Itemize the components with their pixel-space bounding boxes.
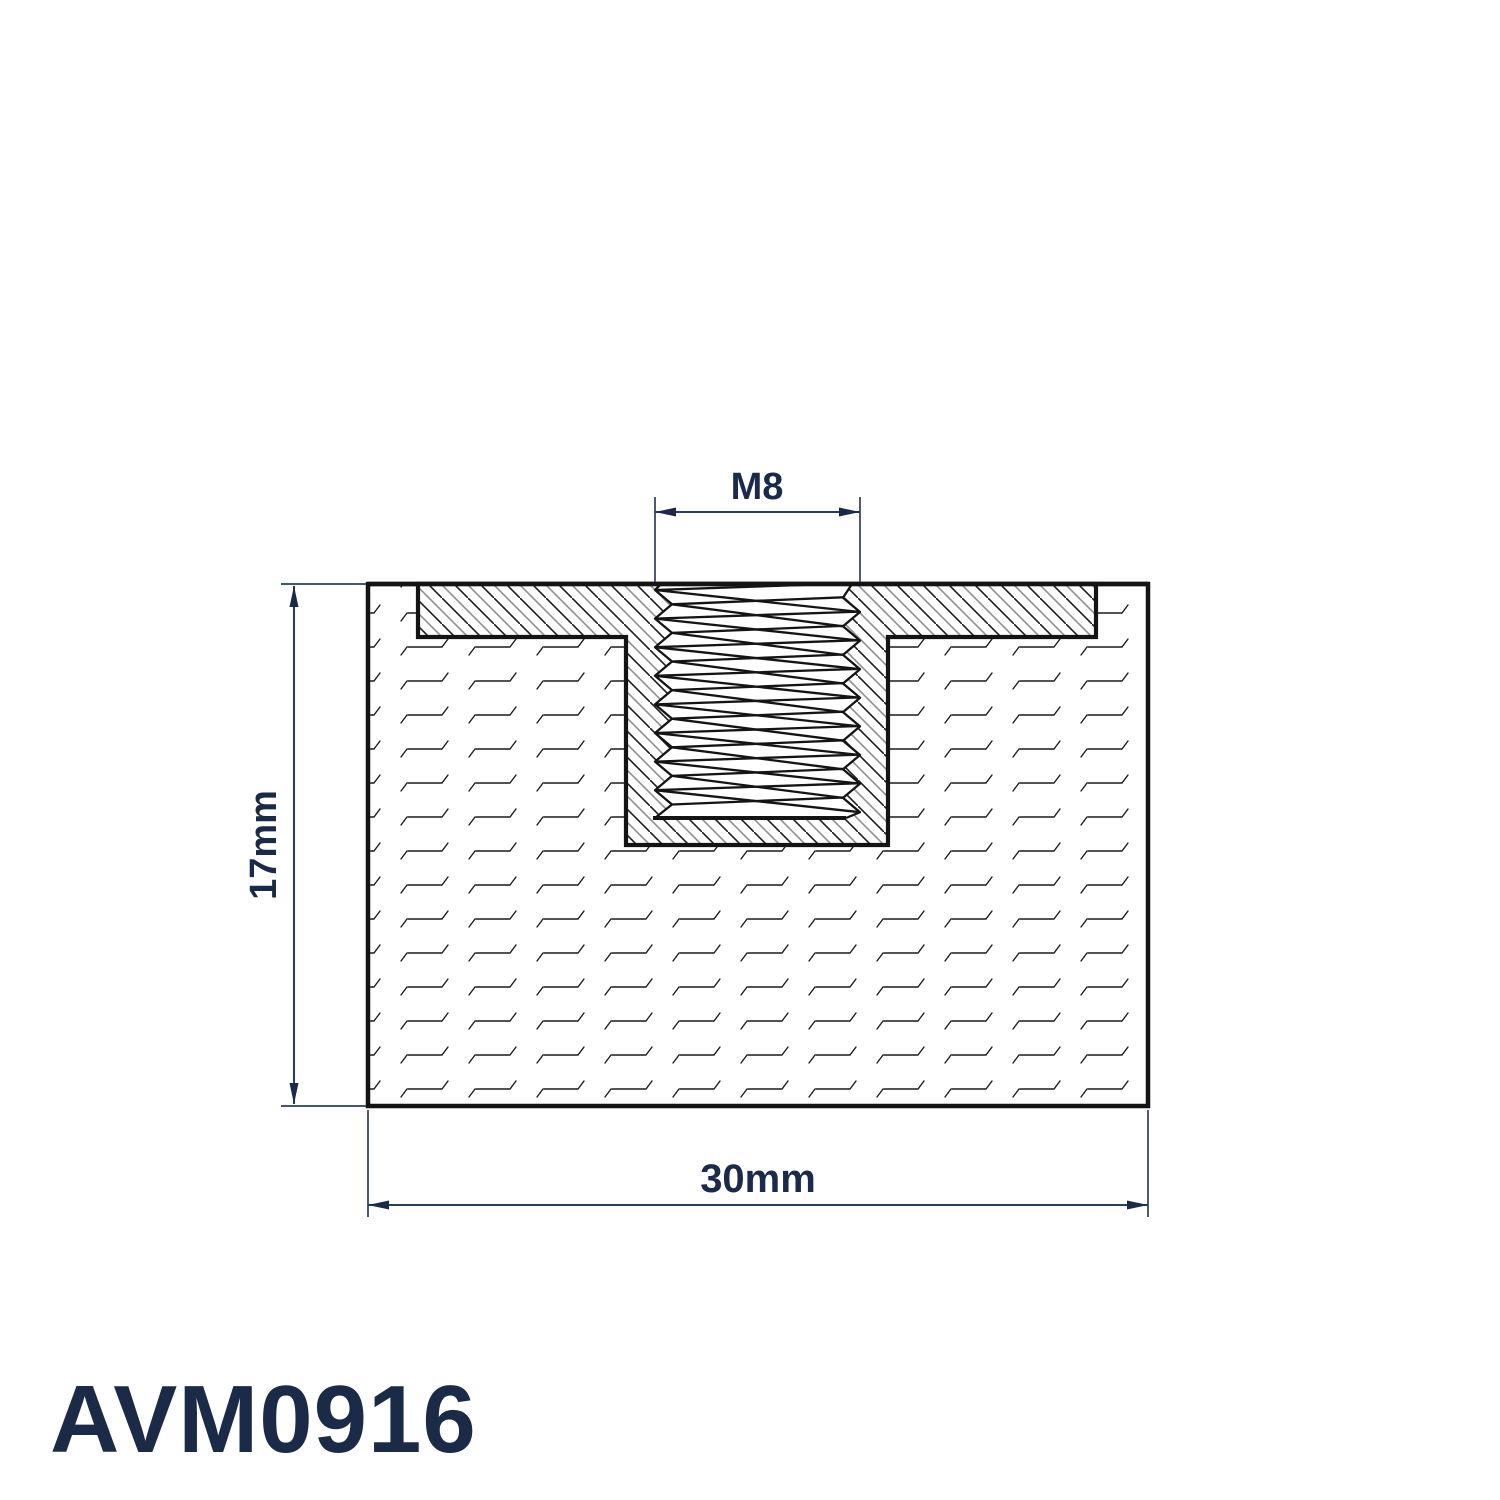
technical-drawing: M8 17mm 30mm AVM0916 <box>0 0 1500 1500</box>
width-label: 30mm <box>700 1157 816 1201</box>
part-number-label: AVM0916 <box>50 1366 477 1473</box>
height-label: 17mm <box>243 790 285 900</box>
thread-size-label: M8 <box>731 466 784 508</box>
drawing-canvas: M8 17mm 30mm AVM0916 <box>0 0 1500 1500</box>
